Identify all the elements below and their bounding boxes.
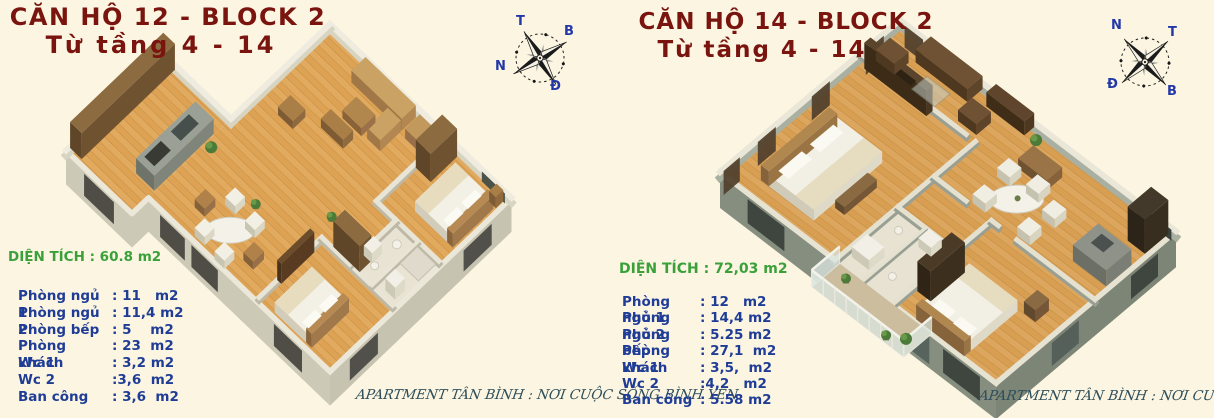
apartment-floor-range: Từ tầng 4 - 14 — [657, 37, 867, 63]
table-row: Phòng ngủ 1: 12 m2 — [622, 294, 776, 310]
room-label: Wc 2 — [622, 376, 700, 392]
total-area-label: DIỆN TÍCH : 60.8 m2 — [8, 249, 161, 265]
compass-label-north: B — [564, 24, 574, 39]
compass-label-north: N — [1111, 18, 1122, 33]
table-row: Phòng ngủ 2: 11,4 m2 — [18, 305, 184, 322]
room-area-table: Phòng ngủ 1: 12 m2 Phòng ngủ 2: 14,4 m2 … — [622, 294, 776, 409]
room-label: Wc 1 — [622, 360, 700, 376]
compass-label-east: Đ — [550, 79, 561, 94]
compass-label-west: T — [1168, 25, 1177, 40]
apartment-panel-12: CĂN HỘ 12 - BLOCK 2 Từ tầng 4 - 14 T B N… — [0, 0, 607, 418]
room-value: : 5 m2 — [112, 322, 174, 339]
room-label: Ban công — [622, 392, 700, 408]
table-row: Wc 2:3,6 m2 — [18, 372, 184, 389]
compass-label-south: N — [495, 59, 506, 74]
room-label: Phòng khách — [18, 338, 112, 355]
table-row: Wc 2:4,2 m2 — [622, 376, 776, 392]
room-value: :3,6 m2 — [112, 372, 174, 389]
room-label: Phòng khách — [622, 343, 700, 359]
table-row: Phòng khách: 23 m2 — [18, 338, 184, 355]
table-row: Ban công: 3,6 m2 — [18, 389, 184, 406]
room-label: Phòng ngủ 1 — [622, 294, 700, 310]
table-row: Phòng ngủ 2: 14,4 m2 — [622, 310, 776, 326]
table-row: Phòng ngủ 1: 11 m2 — [18, 288, 184, 305]
apartment-title: CĂN HỘ 14 - BLOCK 2 — [629, 9, 943, 35]
room-value: : 11 m2 — [112, 288, 178, 305]
apartment-title: CĂN HỘ 12 - BLOCK 2 — [6, 3, 330, 31]
table-row: Wc 1: 3,2 m2 — [18, 355, 184, 372]
room-value: : 3,5, m2 — [700, 360, 772, 376]
compass-label-east: Đ — [1107, 77, 1118, 92]
apartment-floor-range: Từ tầng 4 - 14 — [28, 31, 294, 59]
room-value: : 14,4 m2 — [700, 310, 772, 326]
table-row: Phòng bếp: 5 m2 — [18, 322, 184, 339]
room-value: : 5.58 m2 — [700, 392, 772, 408]
compass-label-south: B — [1167, 84, 1177, 99]
table-row: Phòng khách: 27,1 m2 — [622, 343, 776, 359]
room-value: : 12 m2 — [700, 294, 766, 310]
total-area-label: DIỆN TÍCH : 72,03 m2 — [619, 261, 788, 277]
watermark-text: APARTMENT TÂN BÌNH : NƠI CUỘC SỐNG BÌNH … — [978, 388, 1214, 404]
room-label: Phòng ngủ 2 — [622, 310, 700, 326]
room-value: : 11,4 m2 — [112, 305, 184, 322]
table-row: Phòng bếp: 5.25 m2 — [622, 327, 776, 343]
floor-plan-brochure: CĂN HỘ 12 - BLOCK 2 Từ tầng 4 - 14 T B N… — [0, 0, 1214, 418]
apartment-panel-14: CĂN HỘ 14 - BLOCK 2 Từ tầng 4 - 14 N T Đ… — [607, 0, 1214, 418]
room-value: : 3,2 m2 — [112, 355, 174, 372]
room-value: : 3,6 m2 — [112, 389, 179, 406]
room-label: Phòng ngủ 1 — [18, 288, 112, 305]
room-value: : 27,1 m2 — [700, 343, 776, 359]
room-label: Phòng bếp — [622, 327, 700, 343]
room-label: Wc 1 — [18, 355, 112, 372]
room-label: Phòng bếp — [18, 322, 112, 339]
room-label: Phòng ngủ 2 — [18, 305, 112, 322]
room-label: Wc 2 — [18, 372, 112, 389]
table-row: Ban công: 5.58 m2 — [622, 392, 776, 408]
room-area-table: Phòng ngủ 1: 11 m2 Phòng ngủ 2: 11,4 m2 … — [18, 288, 184, 406]
table-row: Wc 1: 3,5, m2 — [622, 360, 776, 376]
room-value: : 23 m2 — [112, 338, 174, 355]
room-value: :4,2 m2 — [700, 376, 767, 392]
compass-label-west: T — [516, 14, 525, 29]
room-label: Ban công — [18, 389, 112, 406]
room-value: : 5.25 m2 — [700, 327, 772, 343]
